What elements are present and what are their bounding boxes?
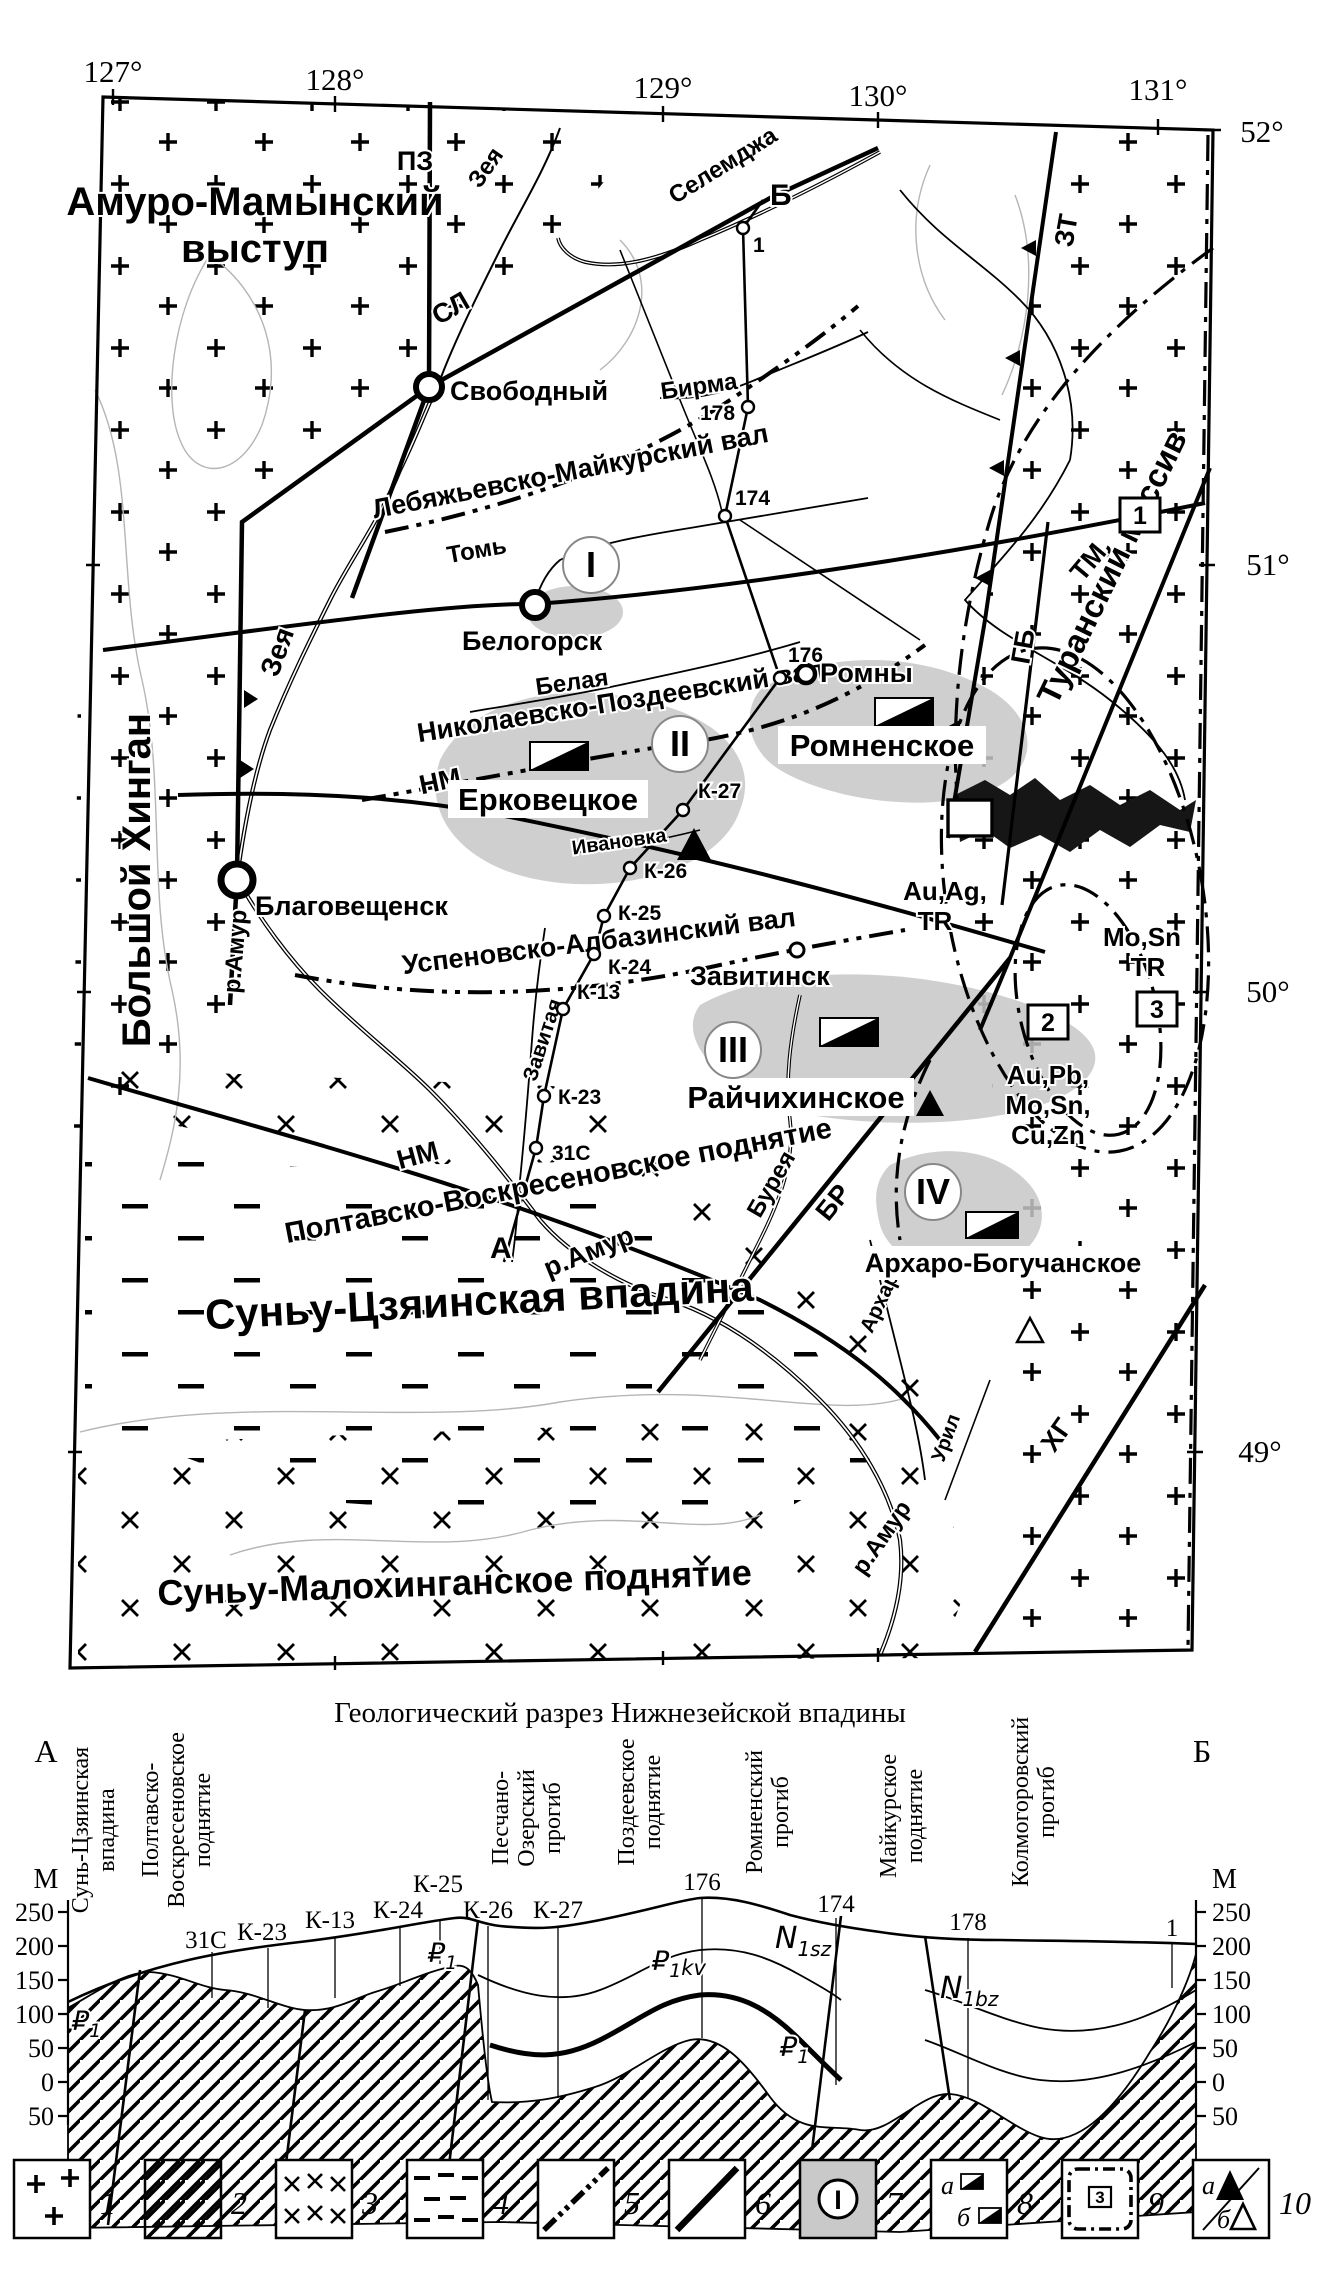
zone-iii-label: III	[718, 1029, 748, 1070]
lon-label: 130°	[849, 78, 908, 113]
legend-item-10: а б 10	[1193, 2160, 1311, 2238]
sec-bh-k25: К-25	[413, 1871, 463, 1898]
sec-bh-178: 178	[949, 1909, 987, 1936]
legend-num-10: 10	[1279, 2185, 1311, 2221]
axis-lebyazhyevsko-label: Лебяжьевско-Майкурский вал	[370, 418, 771, 524]
stratum-p1-mid: ₽1	[427, 1938, 457, 1974]
legend-box-basement	[145, 2160, 221, 2238]
city-circle-svobodny	[416, 374, 442, 400]
lat-label: 49°	[1238, 1434, 1281, 1469]
minerals-mosn-2: Mo,Sn,	[1005, 1090, 1090, 1120]
sec-bh-k26: К-26	[463, 1897, 513, 1924]
bh-k13: К-13	[577, 981, 620, 1004]
bh-31c: 31С	[552, 1142, 591, 1165]
legend-num-7: 7	[886, 2185, 904, 2221]
minerals-tr-1: TR	[918, 906, 953, 936]
legend-8a: а	[941, 2171, 954, 2200]
city-circle-belogorsk	[522, 592, 548, 618]
tick-label: 50	[28, 2034, 54, 2063]
structure-label: Ромненский	[742, 1750, 768, 1874]
layer-lines	[478, 1949, 1196, 2081]
legend-zone-i: I	[834, 2185, 842, 2215]
bh-k26: К-26	[644, 860, 687, 883]
structure-label: Озерский	[514, 1769, 540, 1867]
legend-num-5: 5	[624, 2185, 640, 2221]
city-romny-label: Ромны	[820, 658, 913, 688]
tick-label: 150	[1212, 1966, 1251, 1995]
deposit-arkharo-label: Архаро-Богучанское	[865, 1248, 1142, 1278]
scale-m-left: М	[34, 1864, 59, 1895]
minerals-auag: Au,Ag,	[903, 876, 987, 906]
structure-label: поднятие	[640, 1755, 666, 1849]
structure-label: прогиб	[540, 1782, 566, 1854]
lat-label: 52°	[1240, 114, 1283, 149]
lon-label: 128°	[306, 62, 365, 97]
tick-label: 50	[28, 2102, 54, 2131]
legend-box-metamorphic	[276, 2160, 352, 2238]
structure-label: Воскресеновское	[164, 1732, 190, 1908]
unit-amur-mamyn-2: выступ	[181, 227, 329, 271]
bh-174: 174	[735, 487, 770, 510]
deposit-romnenskoe-label: Ромненское	[790, 728, 975, 763]
surface-line	[68, 1898, 1196, 2002]
minerals-tr-2: TR	[1131, 952, 1166, 982]
tectonic-map: 127° 128° 129° 130° 131° 52° 51° 50° 49°…	[66, 54, 1289, 1670]
stratum-p1-lower: ₽1	[779, 2032, 809, 2068]
tick-label: 50	[1212, 2102, 1238, 2131]
zone-ii-label: II	[670, 723, 690, 764]
stratum-n1bz: N1bz	[940, 1971, 999, 2011]
tick-label: 200	[1212, 1932, 1251, 1961]
box-1-label: 1	[1133, 502, 1147, 530]
right-scale-labels: 250 200 150 100 50 0 50	[1212, 1898, 1251, 2131]
sec-bh-31c: 31С	[185, 1927, 227, 1954]
legend-box-granitoids	[14, 2160, 90, 2238]
city-circle-zavitinsk	[790, 943, 804, 957]
legend-10a: а	[1202, 2171, 1215, 2200]
river-selemdzha-label: Селемджа	[664, 121, 783, 209]
legend-box3-label: 3	[1095, 2188, 1104, 2207]
legend-10b: б	[1217, 2205, 1231, 2234]
section-point-a: А	[34, 1733, 57, 1769]
tick-label: 250	[15, 1898, 54, 1927]
sec-bh-k13: К-13	[305, 1907, 355, 1934]
bh-178: 178	[700, 402, 735, 425]
deposit-raychikhinskoe-label: Райчихинское	[687, 1080, 904, 1115]
sec-bh-k27: К-27	[533, 1897, 583, 1924]
river-tom-label: Томь	[445, 532, 509, 569]
bh-1: 1	[753, 234, 765, 257]
tick-label: 100	[1212, 2000, 1251, 2029]
legend-num-1: 1	[100, 2185, 116, 2221]
city-svobodny-label: Свободный	[450, 376, 608, 406]
minerals-mosn-1: Mo,Sn	[1103, 922, 1181, 952]
map-point-a: А	[490, 1232, 512, 1265]
left-scale-labels: 250 200 150 100 50 0 50	[15, 1898, 54, 2131]
city-circle-romny	[797, 665, 815, 683]
legend-box-sediments	[407, 2160, 483, 2238]
structure-label: Майкурское	[876, 1754, 902, 1878]
bh-k23: К-23	[558, 1086, 601, 1109]
bh-k27: К-27	[698, 780, 741, 803]
sec-bh-k23: К-23	[237, 1919, 287, 1946]
legend-8b: б	[957, 2203, 971, 2232]
box-3-label: 3	[1150, 996, 1164, 1024]
empty-box-symbol	[948, 800, 992, 836]
fault-pz-label: ПЗ	[397, 146, 433, 176]
legend-num-3: 3	[361, 2185, 378, 2221]
bh-k25: К-25	[618, 902, 661, 925]
lon-label: 129°	[634, 70, 693, 105]
legend-num-9: 9	[1148, 2185, 1164, 2221]
tick-label: 50	[1212, 2034, 1238, 2063]
minerals-aupb: Au,Pb,	[1007, 1060, 1089, 1090]
sec-bh-1: 1	[1166, 1915, 1179, 1942]
structure-label: поднятие	[902, 1769, 928, 1863]
section-point-b: Б	[1193, 1733, 1211, 1769]
legend-num-6: 6	[755, 2185, 771, 2221]
geological-map-figure: 127° 128° 129° 130° 131° 52° 51° 50° 49°…	[0, 0, 1321, 2272]
stratum-p1kv: ₽1kv	[651, 1946, 706, 1982]
lon-label: 131°	[1129, 72, 1188, 107]
map-point-b: Б	[770, 179, 792, 212]
sec-bh-k24: К-24	[373, 1897, 424, 1924]
tick-label: 100	[15, 2000, 54, 2029]
box-2-label: 2	[1041, 1009, 1055, 1037]
deposit-erkovetskoe-label: Ерковецкое	[458, 782, 638, 817]
city-belogorsk-label: Белогорск	[462, 626, 603, 656]
sec-bh-176: 176	[683, 1869, 721, 1896]
tick-label: 150	[15, 1966, 54, 1995]
tick-label: 0	[1212, 2068, 1225, 2097]
structure-label: Поздеевское	[614, 1738, 640, 1865]
tick-label: 200	[15, 1932, 54, 1961]
minerals-cuzn: Cu,Zn	[1011, 1120, 1085, 1150]
tick-label: 0	[41, 2068, 54, 2097]
structure-label: Колмогоровский	[1008, 1717, 1034, 1887]
metamorphic-band-1	[85, 1068, 700, 1165]
scale-m-right: М	[1212, 1864, 1237, 1895]
fault-zt-label: ЗТ	[1049, 211, 1084, 249]
structure-label: прогиб	[1034, 1766, 1060, 1838]
bh-176: 176	[788, 644, 823, 667]
section-title: Геологический разрез Нижнезейской впадин…	[334, 1697, 906, 1729]
legend-num-4: 4	[493, 2185, 509, 2221]
legend-num-8: 8	[1017, 2185, 1033, 2221]
sec-bh-174: 174	[817, 1891, 855, 1918]
structure-label: поднятие	[190, 1773, 216, 1867]
structure-label: прогиб	[768, 1776, 794, 1848]
stratum-n1sz: N1sz	[775, 1921, 832, 1961]
unit-amur-mamyn-1: Амуро-Мамынский	[66, 180, 443, 224]
zone-iv-label: IV	[916, 1171, 950, 1212]
structure-label: Полтавско-	[138, 1763, 164, 1878]
city-zavitinsk-label: Завитинск	[690, 961, 830, 991]
structure-label: Сунь-Цзяинская	[68, 1747, 94, 1913]
fault-br-label: БР	[810, 1178, 857, 1226]
unit-khingan: Большой Хинган	[115, 713, 159, 1047]
zone-i-label: I	[586, 544, 596, 585]
tick-label: 250	[1212, 1898, 1251, 1927]
structure-label: Песчано-	[488, 1771, 514, 1865]
section-structures: Сунь-Цзяинская впадина Полтавско- Воскре…	[68, 1717, 1060, 1913]
city-circle-blagoveshchensk	[221, 864, 253, 896]
lat-label: 50°	[1246, 974, 1289, 1009]
fault-gb-label: ГБ	[1005, 627, 1041, 666]
lat-label: 51°	[1246, 547, 1289, 582]
lon-label: 127°	[84, 54, 143, 89]
granite-region-khingan	[74, 540, 255, 1130]
legend-num-2: 2	[231, 2185, 247, 2221]
structure-label: впадина	[94, 1788, 120, 1872]
bh-k24: К-24	[608, 956, 651, 979]
city-blagoveshchensk-label: Благовещенск	[255, 891, 448, 921]
cross-section: Геологический разрез Нижнезейской впадин…	[15, 1697, 1251, 2232]
